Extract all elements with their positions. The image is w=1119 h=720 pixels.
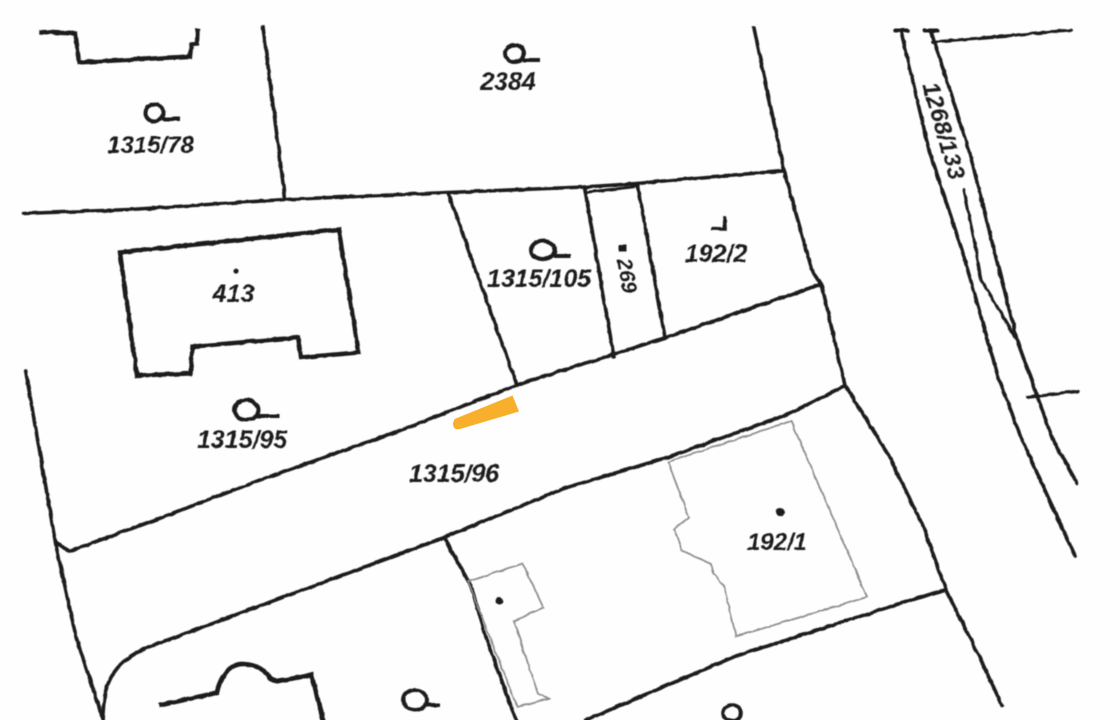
svg-text:192/1: 192/1 [747, 529, 807, 556]
svg-text:1315/105: 1315/105 [487, 265, 592, 293]
svg-text:413: 413 [212, 280, 255, 308]
svg-text:2384: 2384 [479, 68, 536, 96]
svg-text:192/2: 192/2 [685, 240, 748, 268]
svg-text:1315/95: 1315/95 [197, 426, 288, 454]
svg-text:1315/78: 1315/78 [107, 132, 194, 159]
svg-text:1315/96: 1315/96 [409, 460, 500, 488]
svg-text:269: 269 [612, 256, 641, 296]
